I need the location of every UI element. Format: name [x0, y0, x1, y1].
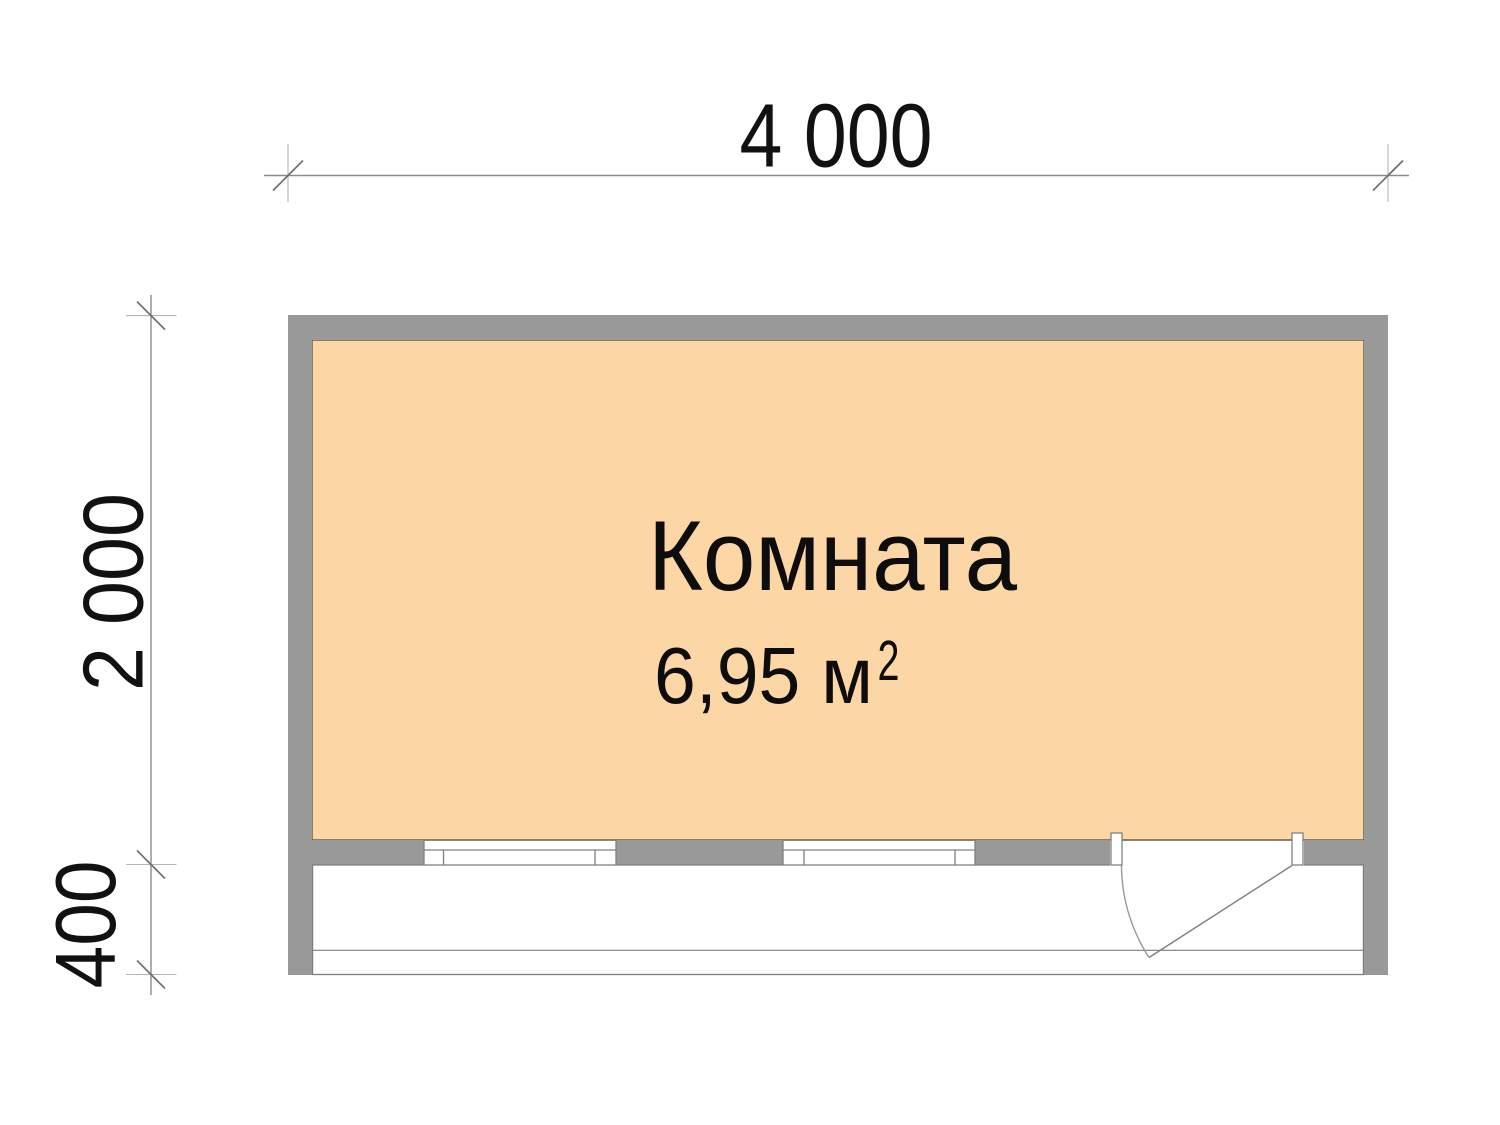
svg-text:400: 400 [39, 860, 134, 988]
svg-text:2: 2 [878, 629, 900, 693]
svg-text:2 000: 2 000 [67, 493, 162, 691]
svg-text:6,95 м: 6,95 м [654, 631, 873, 720]
svg-text:4 000: 4 000 [740, 87, 933, 187]
svg-text:Комната: Комната [648, 500, 1018, 611]
